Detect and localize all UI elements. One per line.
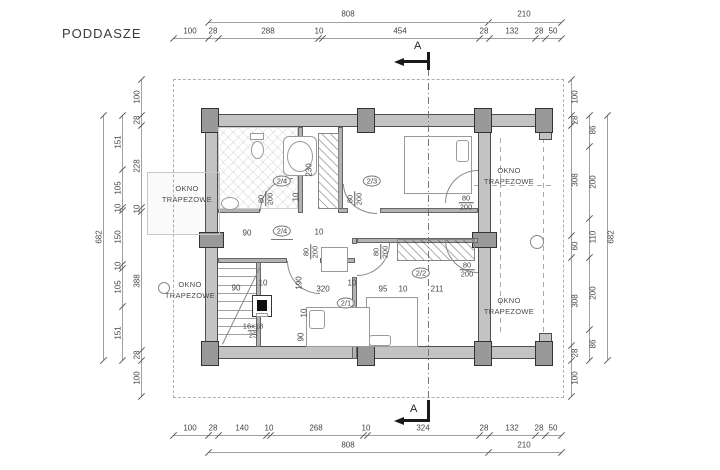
- window-label: OKNOTRAPEZOWE: [165, 279, 215, 302]
- log-crossing: [474, 341, 492, 366]
- stair-tread: [218, 318, 256, 319]
- dim-label: 324: [416, 424, 429, 433]
- dim-label: 28: [535, 27, 544, 36]
- dim-label: 308: [571, 173, 580, 186]
- closet-hatch: [318, 133, 339, 209]
- dim-tick: [558, 449, 565, 456]
- stair-tread: [218, 276, 256, 277]
- wall-bottom: [205, 346, 552, 359]
- dim-label: 200: [589, 175, 598, 188]
- dim-label: 28: [571, 349, 580, 358]
- pillow-2-2: [369, 335, 391, 346]
- dim-label: 808: [341, 10, 354, 19]
- wall-23-bottom: [338, 208, 348, 213]
- dim-label: 10: [315, 27, 324, 36]
- dim-label: 100: [571, 371, 580, 384]
- log-crossing: [201, 108, 219, 133]
- log-crossing: [535, 341, 553, 366]
- dim-tick: [558, 19, 565, 26]
- interior-dim-label: 10: [259, 279, 268, 288]
- dim-label: 200: [589, 286, 598, 299]
- dim-label: 210: [517, 10, 530, 19]
- dim-label: 50: [549, 424, 558, 433]
- pillow-2-1: [309, 310, 325, 329]
- section-label: A: [410, 403, 417, 415]
- dim-label: 105: [114, 181, 123, 194]
- dim-tick: [558, 432, 565, 439]
- toilet-bowl: [251, 141, 264, 159]
- dim-line: [208, 452, 561, 453]
- dim-label: 105: [114, 280, 123, 293]
- door-size-label: 80200: [257, 192, 275, 207]
- section-arrow-icon: [394, 58, 404, 66]
- interior-dim-label: 95: [379, 285, 388, 294]
- stair-tread: [218, 293, 256, 294]
- interior-dim-label: 90: [297, 333, 306, 342]
- interior-dim-label: 10: [348, 279, 357, 288]
- dim-line: [488, 22, 561, 23]
- dim-label: 140: [235, 424, 248, 433]
- interior-dim-label: 10: [315, 228, 324, 237]
- door-size-label: 80200: [302, 245, 320, 260]
- dim-label: 28: [480, 424, 489, 433]
- dim-label: 10: [114, 204, 123, 213]
- section-bar: [402, 60, 430, 63]
- window-label: OKNOTRAPEZOWE: [162, 183, 212, 206]
- dim-label: 288: [261, 27, 274, 36]
- desk: [321, 247, 348, 272]
- dim-label: 10: [265, 424, 274, 433]
- section-arrow-icon: [394, 417, 404, 425]
- door-size-label: 80200: [459, 194, 474, 212]
- stair-tread: [218, 301, 256, 302]
- dim-label: 110: [589, 231, 598, 244]
- dim-label: 100: [183, 27, 196, 36]
- floorplan-canvas: PODDASZE AA80821010028288104542813228501…: [0, 0, 720, 470]
- section-label: A: [414, 40, 421, 52]
- sink: [221, 197, 239, 210]
- stair-note: 16x1825: [243, 322, 263, 340]
- door-size-label: 80200: [460, 261, 475, 279]
- dim-label: 150: [114, 230, 123, 243]
- log-crossing: [474, 108, 492, 133]
- chimney-flue: [257, 300, 267, 311]
- dim-label: 388: [133, 274, 142, 287]
- dim-label: 28: [535, 424, 544, 433]
- interior-dim-label: 10: [399, 285, 408, 294]
- dim-label: 28: [209, 27, 218, 36]
- dim-label: 86: [589, 340, 598, 349]
- interior-dim-label: 10: [292, 193, 301, 202]
- dim-label: 132: [505, 27, 518, 36]
- dim-label: 28: [480, 27, 489, 36]
- door-size-label: 80200: [372, 245, 390, 260]
- dim-label: 28: [133, 351, 142, 360]
- dim-label: 50: [549, 27, 558, 36]
- dim-label: 682: [607, 230, 616, 243]
- dim-label: 151: [114, 326, 123, 339]
- stair-tread: [218, 268, 256, 269]
- dim-label: 228: [133, 159, 142, 172]
- section-line: [428, 55, 429, 415]
- interior-dim-label: 211: [431, 285, 444, 294]
- log-crossing: [201, 341, 219, 366]
- dim-label: 86: [589, 126, 598, 135]
- room-tag-underline: [271, 239, 293, 240]
- dim-label: 100: [183, 424, 196, 433]
- wall-hall-bottom: [218, 258, 287, 263]
- door-size-label: 80200: [346, 192, 364, 207]
- interior-dim-label: 190: [295, 276, 304, 289]
- interior-dim-label: 90: [232, 284, 241, 293]
- dim-line: [173, 38, 561, 39]
- dim-label: 28: [571, 116, 580, 125]
- dim-tick: [138, 393, 145, 400]
- window-label: OKNOTRAPEZOWE: [484, 295, 534, 318]
- dim-label: 10: [133, 205, 142, 214]
- dim-tick: [558, 35, 565, 42]
- dim-label: 60: [571, 242, 580, 251]
- dim-label: 808: [341, 441, 354, 450]
- window-label: OKNOTRAPEZOWE: [484, 165, 534, 188]
- chimney-vent: [256, 313, 268, 317]
- axis-circle: [530, 235, 544, 249]
- wing-guide: [543, 138, 544, 333]
- dim-label: 100: [571, 90, 580, 103]
- dim-tick: [604, 357, 611, 364]
- log-crossing: [535, 108, 553, 133]
- dim-label: 28: [133, 116, 142, 125]
- dim-label: 454: [393, 27, 406, 36]
- dim-tick: [586, 357, 593, 364]
- dim-line: [208, 22, 488, 23]
- dim-label: 151: [114, 135, 123, 148]
- interior-dim-label: 320: [316, 285, 329, 294]
- pillow-2-3: [456, 140, 469, 162]
- dim-label: 268: [309, 424, 322, 433]
- dim-label: 28: [209, 424, 218, 433]
- interior-dim-label: 90: [243, 229, 252, 238]
- dim-tick: [119, 357, 126, 364]
- window-circle-icon: [158, 282, 170, 294]
- dim-tick: [100, 357, 107, 364]
- dim-label: 210: [517, 441, 530, 450]
- section-bar: [402, 419, 430, 422]
- dim-tick: [568, 393, 575, 400]
- dim-label: 682: [95, 230, 104, 243]
- interior-dim-label: 10: [300, 309, 309, 318]
- dim-label: 100: [133, 371, 142, 384]
- interior-dim-label: 230: [305, 163, 314, 176]
- dim-label: 100: [133, 90, 142, 103]
- wall-top: [205, 114, 552, 127]
- dim-label: 132: [505, 424, 518, 433]
- dim-label: 10: [114, 262, 123, 271]
- floorplan-drawing: AA80821010028288104542813228501002814010…: [0, 0, 720, 470]
- log-crossing: [357, 108, 375, 133]
- toilet-tank: [250, 133, 264, 140]
- dim-label: 308: [571, 294, 580, 307]
- dim-label: 10: [362, 424, 371, 433]
